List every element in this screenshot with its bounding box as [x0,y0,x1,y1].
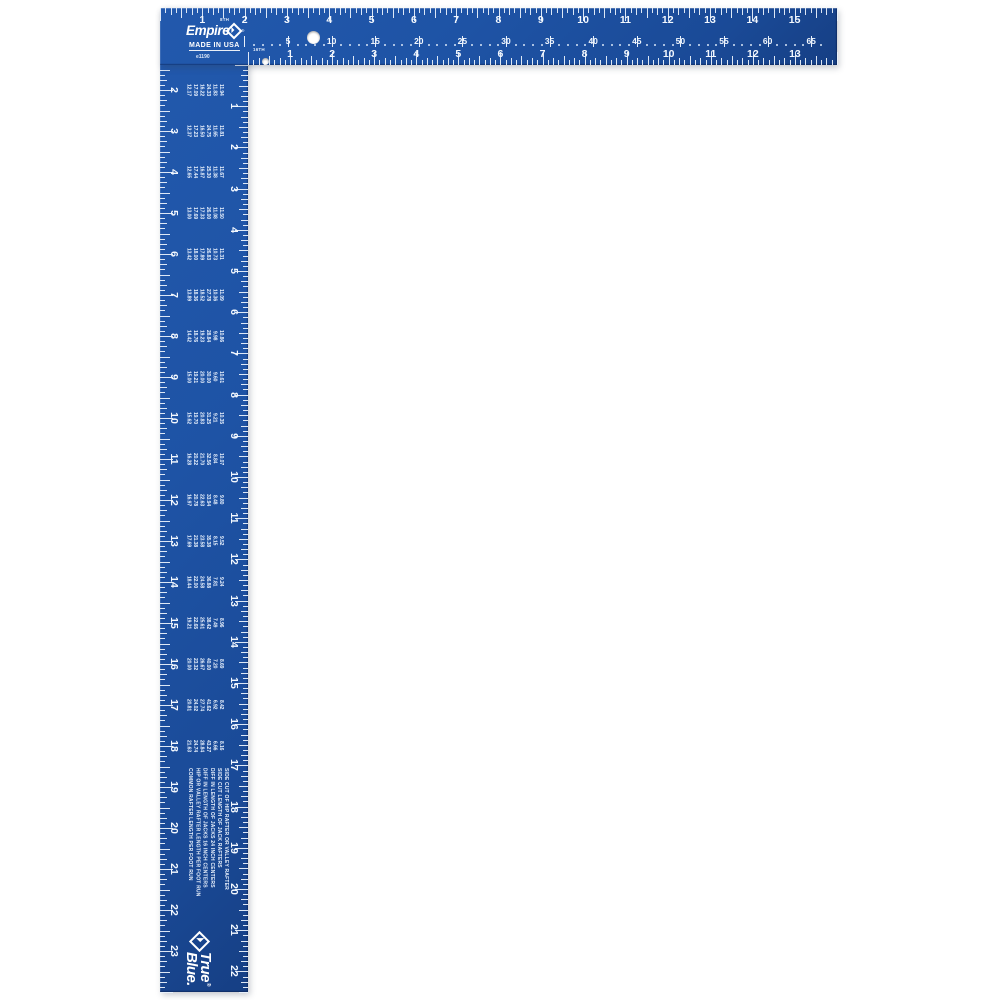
rafter-table-column: 19.2122.6525.6138.427.498.96 [185,606,224,640]
ruler-tick [488,8,489,15]
ruler-tick [241,467,248,468]
ruler-tick [160,772,165,773]
rafter-table-value: 10.07 [218,442,225,476]
ruler-tick [243,729,248,730]
ruler-tick [160,818,167,819]
ruler-tick [784,58,785,65]
rafter-table-row-label: SIDE CUT LENGTH OF JACK RAFTERS [215,768,222,928]
ruler-tick [343,58,344,65]
ruler-tick [443,60,444,65]
ruler-tick [241,796,248,797]
inch-number: 21 [169,863,179,875]
ruler-tick [160,531,167,532]
ruler-tick [160,85,165,86]
ruler-tick [490,58,491,65]
ruler-tick [641,8,642,13]
rafter-table-value: 8.42 [218,688,225,722]
ruler-tick [160,726,170,727]
ruler-tick [243,214,248,215]
ruler-tick [530,8,531,15]
octagon-scale-dot [515,44,517,46]
ruler-tick [763,8,764,15]
ruler-tick [243,832,248,833]
ruler-tick [160,956,165,957]
ruler-tick [243,389,248,390]
octagon-scale-dot [454,44,456,46]
ruler-tick [243,163,248,164]
ruler-tick [243,935,248,936]
ruler-tick [532,58,533,65]
octagon-scale-dot [820,44,822,46]
ruler-tick [816,8,817,18]
ruler-tick [160,464,165,465]
ruler-tick [579,60,580,65]
octagon-scale-dot [279,44,281,46]
octagon-scale-dot [558,44,560,46]
inch-number: 7 [540,49,546,59]
inch-number: 16 [229,718,239,730]
ruler-tick [594,8,595,15]
ruler-tick [160,751,165,752]
ruler-tick [611,60,612,65]
ruler-tick [243,565,248,566]
ruler-tick [241,838,248,839]
ruler-tick [243,956,248,957]
ruler-tick [779,8,780,13]
octagon-scale-dot [428,44,430,46]
ruler-tick [243,359,248,360]
ruler-tick [160,720,165,721]
ruler-tick [243,503,248,504]
octagon-scale-dot [436,44,438,46]
ruler-tick [243,328,248,329]
ruler-tick [243,235,248,236]
ruler-tick [461,8,462,13]
ruler-tick [243,256,248,257]
ruler-tick [282,8,283,13]
octagon-scale-dot [672,44,674,46]
ruler-tick [241,755,248,756]
ruler-tick [243,286,248,287]
ruler-tick [243,472,248,473]
ruler-tick [243,853,248,854]
rafter-table-value: 9.24 [218,565,225,599]
ruler-tick [243,132,248,133]
ruler-tick [243,698,248,699]
ruler-tick [637,58,638,65]
ruler-tick [467,8,468,15]
rafter-table-row-label: DIFF IN LENGTH OF JACKS 16 INCH CENTERS [200,768,207,928]
ruler-tick [241,879,248,880]
ruler-tick [243,523,248,524]
ruler-tick [721,8,722,15]
ruler-tick [243,204,248,205]
inch-number: 19 [229,842,239,854]
ruler-tick [409,8,410,13]
ruler-tick [485,60,486,65]
ruler-tick [160,823,165,824]
ruler-tick [160,70,170,71]
ruler-tick [361,8,362,15]
ruler-tick [241,158,248,159]
ruler-tick [160,556,165,557]
ruler-tick [241,117,248,118]
ruler-tick [243,874,248,875]
ruler-tick [241,941,248,942]
ruler-tick [243,647,248,648]
ruler-tick [213,8,214,15]
ruler-tick [546,8,547,13]
ruler-tick [241,961,248,962]
ruler-tick [239,86,249,87]
ruler-tick [243,153,248,154]
ruler-tick [160,838,167,839]
ruler-tick [243,915,248,916]
ruler-tick [160,249,165,250]
ruler-tick [292,8,293,13]
ruler-tick [564,56,565,66]
ruler-tick [239,250,249,251]
ruler-tick [160,218,165,219]
ruler-tick [197,8,198,13]
ruler-tick [243,101,248,102]
rafter-table-value: 11.50 [218,196,225,230]
ruler-tick [243,183,248,184]
ruler-tick [557,8,558,13]
inch-number: 3 [169,128,179,134]
octagon-scale-dot [349,44,351,46]
octagon-scale-dot [785,44,787,46]
inch-number: 11 [169,453,179,464]
ruler-tick [160,141,167,142]
ruler-tick [160,413,165,414]
ruler-tick [160,474,165,475]
octagon-scale-number: 65 [806,36,815,46]
inch-number: 3 [229,186,239,192]
octagon-scale-dot [489,44,491,46]
ruler-tick [218,8,219,13]
octagon-scale-bar [244,36,245,47]
inch-number: 13 [169,535,179,547]
ruler-tick [160,577,165,578]
framing-square-tongue: 123456789101112131415 510152025303540455… [160,8,837,65]
ruler-tick [243,946,248,947]
rafter-table-value: 11.67 [218,155,225,189]
ruler-tick [243,379,248,380]
ruler-tick [239,292,249,293]
ruler-tick [758,60,759,65]
ruler-tick [241,137,248,138]
ruler-tick [385,58,386,65]
rafter-table-column: 12.3717.2316.5024.7511.6511.81 [185,114,224,148]
ruler-tick [678,8,679,15]
inch-number: 15 [789,15,801,25]
ruler-tick [243,884,248,885]
framing-square-product-photo: 1234567891011121314151617181920212223 12… [0,0,1000,1000]
ruler-tick [171,8,172,15]
hanging-hole [307,31,320,44]
octagon-scale-dot [654,44,656,46]
ruler-tick [260,8,261,13]
ruler-tick [160,915,165,916]
ruler-tick [679,58,680,65]
inch-number: 9 [229,433,239,439]
rafter-table-value: 8.69 [218,647,225,681]
ruler-tick [160,264,167,265]
ruler-tick [821,8,822,13]
inch-number: 2 [229,144,239,150]
ruler-tick [816,56,817,66]
ruler-tick [241,611,248,612]
ruler-tick [255,8,256,15]
ruler-tick [239,168,249,169]
ruler-tick [239,992,249,993]
ruler-tick [700,58,701,65]
ruler-tick [241,323,248,324]
ruler-tick [243,966,248,967]
ruler-tick [160,510,167,511]
ruler-tick [160,362,165,363]
ruler-tick [726,8,727,13]
ruler-tick [805,8,806,15]
ruler-tick [160,480,170,481]
ruler-tick [784,8,785,15]
ruler-tick [821,60,822,65]
ruler-tick [616,58,617,65]
inch-number: 5 [229,268,239,274]
ruler-tick [243,771,248,772]
ruler-tick [393,8,394,18]
ruler-tick [160,608,165,609]
ruler-tick [243,977,248,978]
ruler-tick [160,392,165,393]
ruler-tick [160,644,170,645]
ruler-tick [241,220,248,221]
ruler-tick [160,654,167,655]
ruler-tick [160,567,165,568]
ruler-tick [763,58,764,65]
ruler-tick [243,348,248,349]
ruler-tick [208,8,209,13]
inch-number: 11 [229,513,239,524]
ruler-tick [160,75,165,76]
ruler-tick [243,585,248,586]
ruler-tick [241,75,248,76]
ruler-tick [243,276,248,277]
octagon-scale-number: 50 [676,36,685,46]
ruler-tick [319,8,320,15]
rafter-table-column: 16.9720.7822.6333.948.489.80 [185,483,224,517]
ruler-tick [160,895,165,896]
ruler-tick [160,100,167,101]
model-number: e1190 [196,54,210,60]
ruler-tick [243,719,248,720]
ruler-tick [243,668,248,669]
ruler-tick [243,709,248,710]
ruler-tick [800,60,801,65]
inch-number: 12 [747,49,759,59]
ruler-tick [243,575,248,576]
inch-number: 14 [169,576,179,588]
ruler-tick [248,52,249,65]
octagon-scale-dot [707,44,709,46]
inch-number: 20 [169,822,179,834]
ruler-tick [160,152,170,153]
ruler-tick [160,874,165,875]
ruler-tick [241,549,248,550]
framing-square-blade: 1234567891011121314151617181920212223 12… [160,8,248,992]
ruler-tick [615,8,616,15]
ruler-tick [493,8,494,13]
rafter-table-value: 11.94 [218,73,225,107]
ruler-tick [160,879,167,880]
inch-number: 12 [229,554,239,566]
ruler-tick [243,462,248,463]
ruler-tick [160,920,167,921]
ruler-tick [160,234,170,235]
inch-number: 10 [229,471,239,483]
ruler-tick [239,662,249,663]
inch-number: 5 [369,15,375,25]
ruler-tick [243,369,248,370]
ruler-tick [160,987,165,988]
octagon-scale-number: 35 [545,36,554,46]
inch-number: 22 [169,904,179,916]
inch-number: 6 [497,49,503,59]
ruler-tick [160,157,165,158]
octagon-scale-dot [393,44,395,46]
ruler-tick [811,8,812,13]
inch-number: 4 [229,227,239,233]
ruler-tick [243,307,248,308]
ruler-tick [427,58,428,65]
inch-number: 6 [169,251,179,257]
ruler-tick [160,802,165,803]
inch-number: 6 [411,15,417,25]
ruler-tick [366,8,367,13]
rafter-table-row-label: COMMON RAFTER LENGTH PER FOOT RUN [186,768,193,928]
ruler-tick [160,710,165,711]
octagon-scale-dot [297,44,299,46]
ruler-tick [758,8,759,13]
ruler-tick [160,490,167,491]
true-blue-wordmark: True® Blue. [185,952,216,986]
rafter-table-value: 11.31 [218,237,225,271]
octagon-scale-dot [646,44,648,46]
ruler-tick [160,305,167,306]
ruler-tick [243,678,248,679]
ruler-tick [239,580,249,581]
ruler-tick [160,741,165,742]
ruler-tick [243,400,248,401]
ruler-tick [276,8,277,15]
ruler-tick [241,487,248,488]
rafter-table-value: 10.86 [218,319,225,353]
ruler-tick [705,8,706,13]
ruler-tick [160,700,165,701]
ruler-tick [243,194,248,195]
ruler-tick [364,58,365,65]
ruler-tick [432,60,433,65]
rafter-table-column: 17.6921.3823.5835.388.159.52 [185,524,224,558]
ruler-tick [160,269,165,270]
inch-number: 4 [169,169,179,175]
ruler-tick [250,8,251,13]
inch-number: 22 [229,966,239,978]
ruler-tick [511,58,512,65]
ruler-tick [239,910,249,911]
ruler-tick [243,801,248,802]
ruler-tick [509,8,510,15]
ruler-tick [379,60,380,65]
empire-logo: Empire ® [186,23,244,38]
octagon-scale-dot [611,44,613,46]
ruler-tick [160,310,165,311]
ruler-tick [721,58,722,65]
octagon-scale-dot [305,44,307,46]
ruler-tick [805,58,806,65]
ruler-tick [160,321,165,322]
ruler-tick [689,8,690,18]
octagon-scale-dot [750,44,752,46]
ruler-tick [306,60,307,65]
octagon-scale-dot [619,44,621,46]
ruler-tick [521,56,522,66]
ruler-tick [160,731,165,732]
inch-number: 16 [169,658,179,670]
ruler-tick [832,60,833,65]
ruler-tick [160,495,165,496]
ruler-tick [313,8,314,13]
ruler-tick [160,597,165,598]
ruler-tick [160,316,170,317]
ruler-tick [779,60,780,65]
ruler-tick [160,433,165,434]
rafter-table-row-label: HIP OR VALLEY RAFTER LENGTH PER FOOT RUN [193,768,200,928]
octagon-scale-number: 40 [588,36,597,46]
ruler-tick [241,982,248,983]
ruler-tick [160,618,165,619]
ruler-tick [160,936,165,937]
ruler-tick [241,693,248,694]
ruler-tick [642,60,643,65]
ruler-tick [239,951,249,952]
ruler-tick [748,60,749,65]
inch-number: 10 [663,49,675,59]
ruler-tick [477,8,478,18]
ruler-tick [160,449,167,450]
ruler-tick [472,8,473,13]
ruler-tick [243,492,248,493]
rafter-table-column: 13.0017.6917.3326.0011.0811.50 [185,196,224,230]
ruler-tick [653,60,654,65]
ruler-tick [243,410,248,411]
ruler-tick [663,60,664,65]
ruler-tick [160,515,165,516]
inch-number: 17 [229,760,239,772]
ruler-tick [239,745,249,746]
ruler-tick [243,431,248,432]
ruler-tick [160,905,165,906]
ruler-tick [636,8,637,15]
ruler-tick [241,570,248,571]
ruler-tick [737,8,738,13]
octagon-scale-dot [401,44,403,46]
ruler-tick [160,849,170,850]
ruler-tick [160,736,167,737]
ruler-tick [160,669,165,670]
ruler-tick [243,80,248,81]
